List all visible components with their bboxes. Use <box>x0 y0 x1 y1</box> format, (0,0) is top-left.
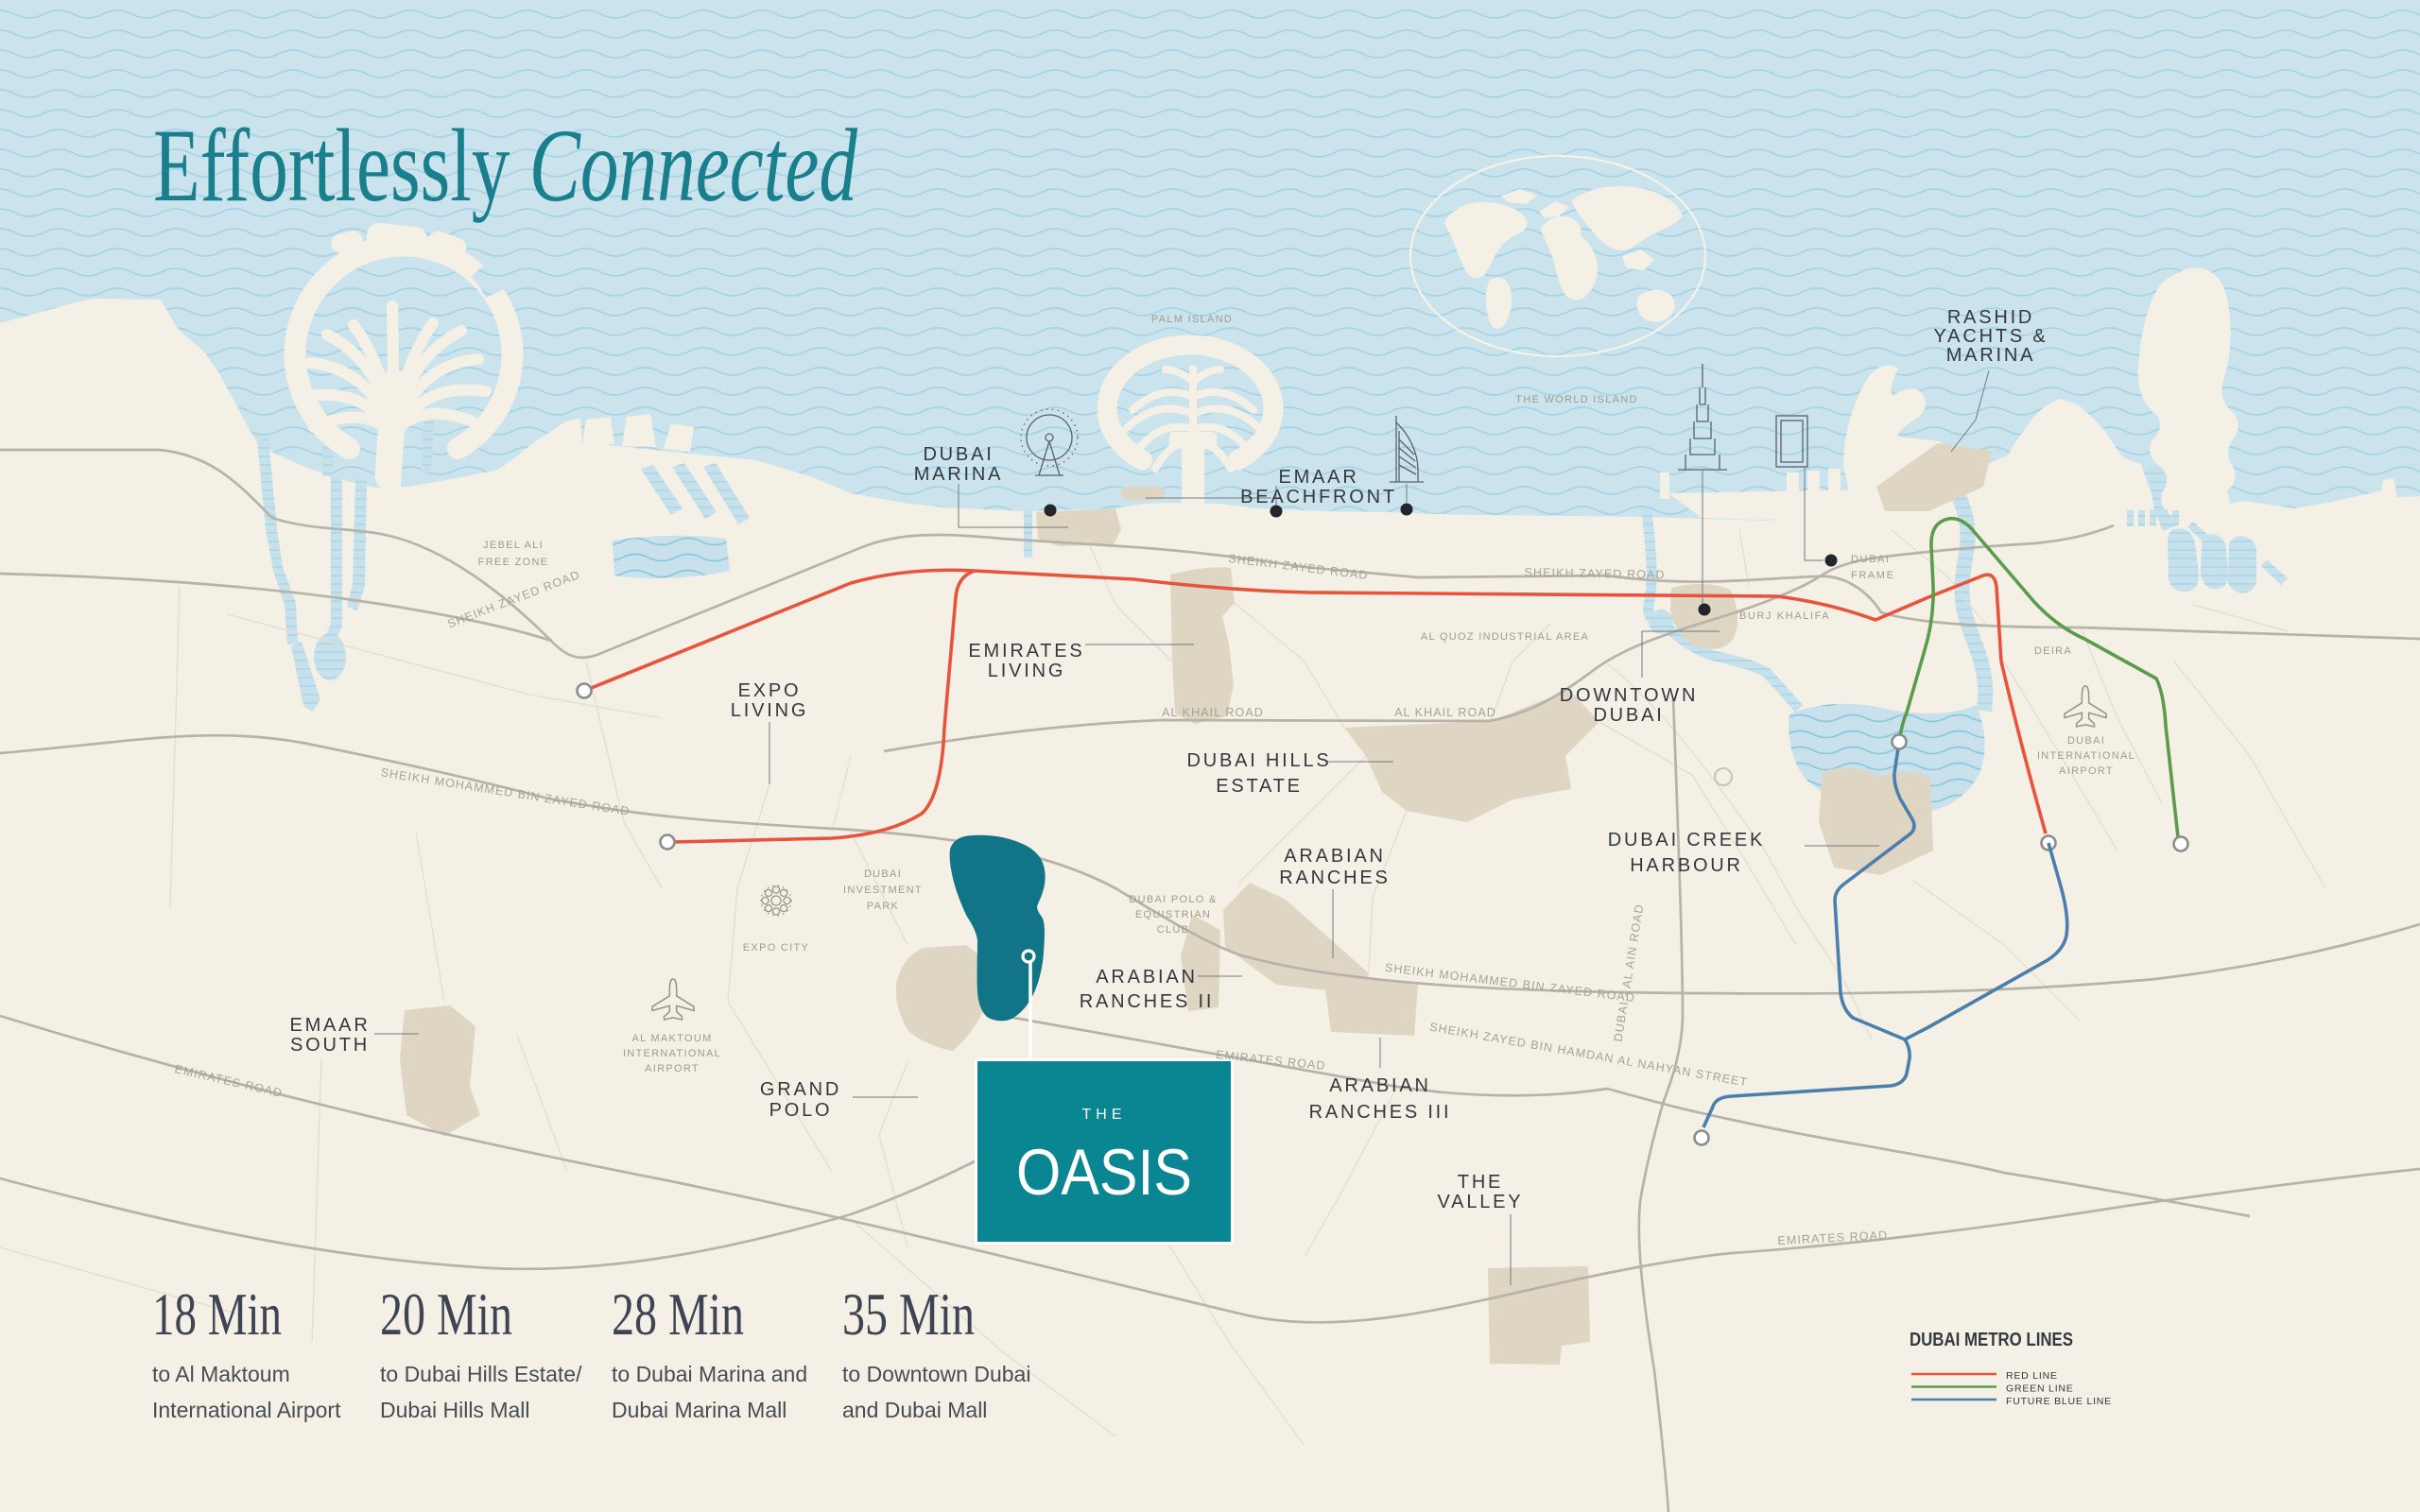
svg-text:POLO: POLO <box>769 1100 833 1121</box>
svg-text:THE: THE <box>1458 1172 1503 1193</box>
svg-text:LIVING: LIVING <box>988 661 1065 681</box>
svg-text:AL QUOZ INDUSTRIAL AREA: AL QUOZ INDUSTRIAL AREA <box>1421 631 1589 643</box>
svg-text:Dubai Marina Mall: Dubai Marina Mall <box>612 1398 786 1422</box>
svg-text:AIRPORT: AIRPORT <box>2059 765 2114 777</box>
svg-text:DUBAI: DUBAI <box>1593 705 1664 726</box>
svg-text:MARINA: MARINA <box>914 464 1004 485</box>
svg-text:ARABIAN: ARABIAN <box>1096 967 1197 988</box>
svg-text:INTERNATIONAL: INTERNATIONAL <box>2037 750 2135 762</box>
svg-text:DUBAI: DUBAI <box>2067 735 2105 747</box>
svg-text:LIVING: LIVING <box>731 700 808 721</box>
svg-text:AIRPORT: AIRPORT <box>645 1063 700 1074</box>
svg-text:INVESTMENT: INVESTMENT <box>843 885 923 896</box>
svg-text:AL MAKTOUM: AL MAKTOUM <box>631 1033 712 1044</box>
svg-text:OASIS: OASIS <box>1016 1136 1192 1209</box>
svg-text:FREE ZONE: FREE ZONE <box>478 557 549 568</box>
svg-text:EMIRATES: EMIRATES <box>968 641 1084 661</box>
svg-text:DUBAI: DUBAI <box>1851 554 1891 565</box>
svg-text:EMAAR: EMAAR <box>289 1015 370 1036</box>
svg-text:and Dubai Mall: and Dubai Mall <box>842 1398 987 1422</box>
svg-text:28 Min: 28 Min <box>612 1280 744 1348</box>
svg-text:Dubai Hills Mall: Dubai Hills Mall <box>380 1398 529 1422</box>
svg-text:DEIRA: DEIRA <box>2034 645 2072 657</box>
svg-text:RANCHES: RANCHES <box>1279 868 1390 888</box>
svg-text:JEBEL ALI: JEBEL ALI <box>483 540 544 551</box>
svg-text:Effortlessly Connected: Effortlessly Connected <box>153 108 858 223</box>
svg-text:THE: THE <box>1082 1107 1127 1123</box>
svg-text:RANCHES III: RANCHES III <box>1309 1102 1452 1123</box>
svg-text:35 Min: 35 Min <box>842 1280 975 1348</box>
svg-text:SHEIKH ZAYED ROAD: SHEIKH ZAYED ROAD <box>1524 566 1665 582</box>
svg-text:EXPO: EXPO <box>738 680 802 701</box>
svg-text:EXPO CITY: EXPO CITY <box>743 942 809 954</box>
svg-text:AL KHAIL ROAD: AL KHAIL ROAD <box>1162 706 1264 719</box>
svg-text:EQUISTRIAN: EQUISTRIAN <box>1135 909 1211 920</box>
svg-text:RANCHES II: RANCHES II <box>1080 991 1214 1012</box>
svg-text:EMAAR: EMAAR <box>1278 467 1358 488</box>
svg-text:DUBAI METRO LINES: DUBAI METRO LINES <box>1910 1330 2073 1350</box>
svg-text:International Airport: International Airport <box>152 1398 341 1422</box>
svg-text:DUBAI: DUBAI <box>923 444 994 465</box>
svg-text:PALM ISLAND: PALM ISLAND <box>1151 314 1233 325</box>
svg-text:AL KHAIL ROAD: AL KHAIL ROAD <box>1394 706 1496 719</box>
svg-text:SOUTH: SOUTH <box>290 1035 370 1056</box>
svg-text:FUTURE BLUE LINE: FUTURE BLUE LINE <box>2006 1396 2112 1407</box>
svg-text:to Al Maktoum: to Al Maktoum <box>152 1362 290 1386</box>
svg-text:DUBAI POLO &: DUBAI POLO & <box>1129 894 1217 905</box>
svg-text:BEACHFRONT: BEACHFRONT <box>1240 487 1397 507</box>
svg-text:20 Min: 20 Min <box>380 1280 512 1348</box>
svg-text:RED LINE: RED LINE <box>2006 1370 2058 1382</box>
svg-text:PARK: PARK <box>867 901 899 912</box>
svg-text:to Dubai Hills Estate/: to Dubai Hills Estate/ <box>380 1362 582 1386</box>
svg-text:HARBOUR: HARBOUR <box>1630 855 1743 876</box>
svg-text:18 Min: 18 Min <box>152 1280 282 1348</box>
svg-text:DUBAI CREEK: DUBAI CREEK <box>1608 830 1765 850</box>
svg-text:DUBAI: DUBAI <box>864 868 902 880</box>
svg-text:BURJ KHALIFA: BURJ KHALIFA <box>1739 610 1830 622</box>
svg-text:to Downtown Dubai: to Downtown Dubai <box>842 1362 1030 1386</box>
svg-text:CLUB: CLUB <box>1157 924 1190 936</box>
svg-text:ARABIAN: ARABIAN <box>1329 1075 1430 1096</box>
svg-text:GRAND: GRAND <box>760 1079 841 1100</box>
svg-text:MARINA: MARINA <box>1946 345 2036 366</box>
svg-text:DUBAI HILLS: DUBAI HILLS <box>1186 750 1331 771</box>
svg-text:RASHID: RASHID <box>1947 307 2034 328</box>
svg-text:DOWNTOWN: DOWNTOWN <box>1560 685 1698 706</box>
svg-text:YACHTS &: YACHTS & <box>1934 326 2048 347</box>
svg-text:INTERNATIONAL: INTERNATIONAL <box>623 1048 721 1059</box>
svg-text:ARABIAN: ARABIAN <box>1284 846 1385 867</box>
svg-text:FRAME: FRAME <box>1851 570 1895 581</box>
svg-text:VALLEY: VALLEY <box>1438 1192 1524 1212</box>
svg-text:ESTATE: ESTATE <box>1216 776 1303 797</box>
svg-text:to Dubai Marina and: to Dubai Marina and <box>612 1362 807 1386</box>
svg-text:GREEN LINE: GREEN LINE <box>2006 1383 2074 1395</box>
svg-text:THE WORLD ISLAND: THE WORLD ISLAND <box>1515 394 1638 405</box>
